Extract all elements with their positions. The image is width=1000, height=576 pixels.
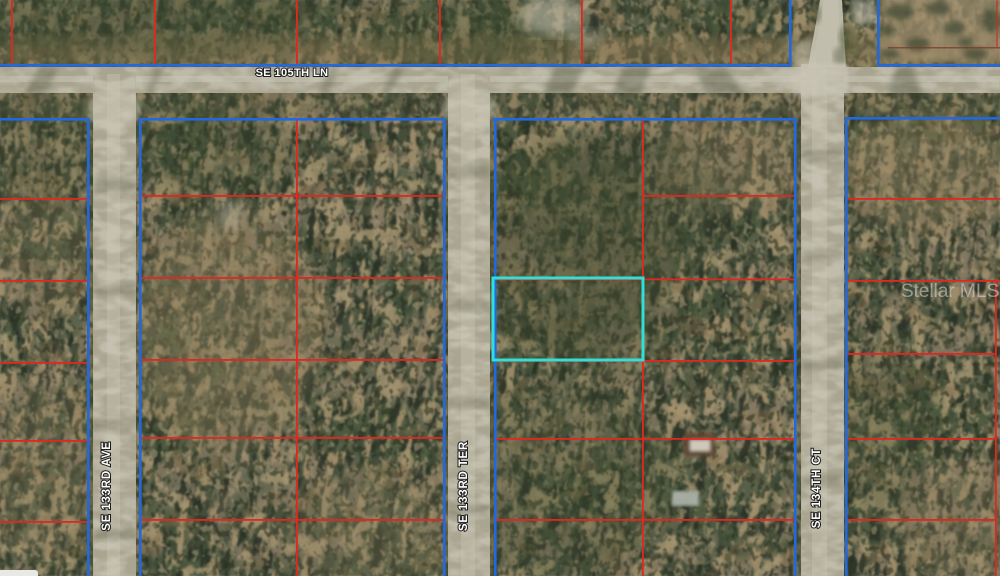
svg-text:SE 133RD TER: SE 133RD TER	[458, 441, 470, 531]
svg-text:SE 134TH CT: SE 134TH CT	[811, 448, 823, 528]
svg-text:SE 133RD AVE: SE 133RD AVE	[101, 441, 113, 531]
svg-text:Stellar MLS: Stellar MLS	[901, 280, 1000, 302]
svg-text:SE 105TH LN: SE 105TH LN	[256, 67, 329, 79]
